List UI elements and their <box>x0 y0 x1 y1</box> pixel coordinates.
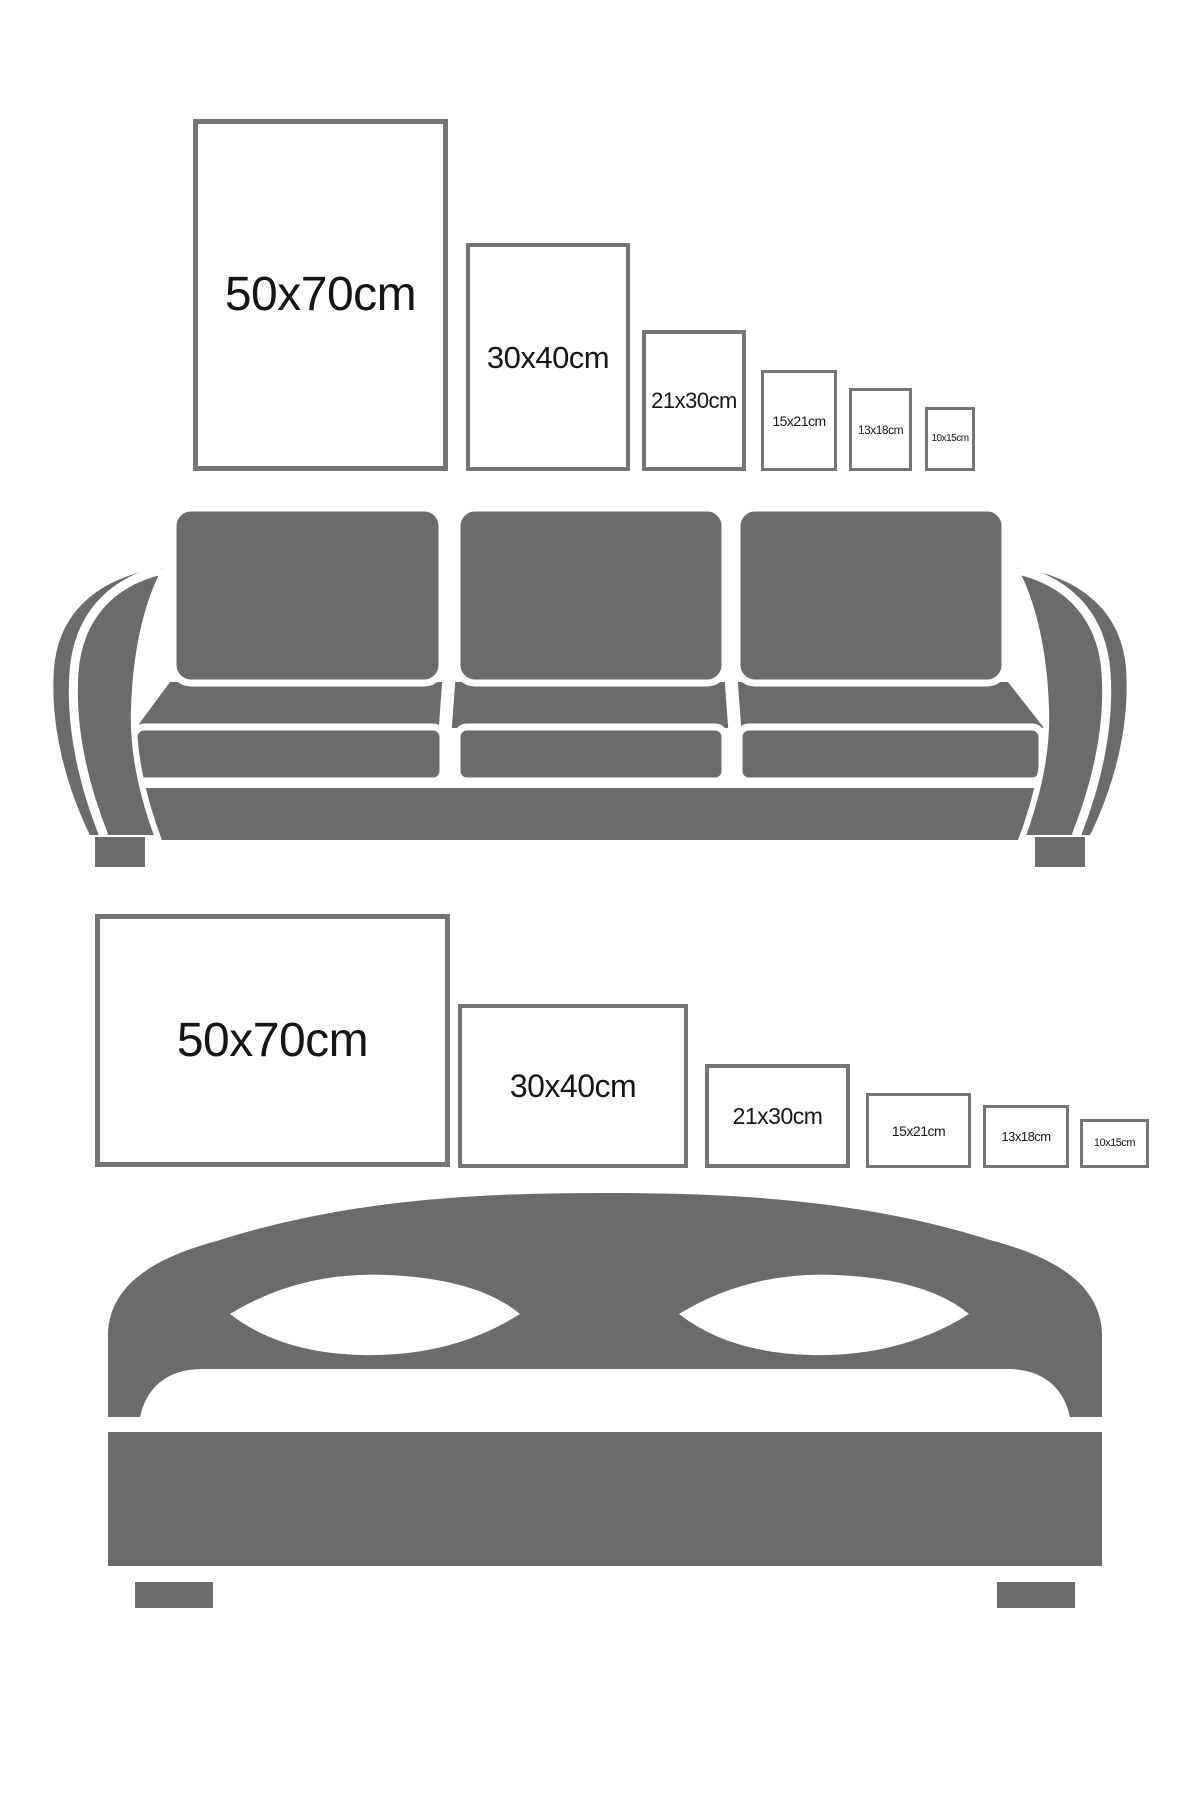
sofa-icon <box>40 500 1140 875</box>
frame-size-label: 13x18cm <box>1001 1130 1050 1143</box>
frame-size-label: 10x15cm <box>1094 1138 1135 1149</box>
frame-size-label: 15x21cm <box>892 1124 945 1138</box>
frame-landscape-21x30: 21x30cm <box>705 1064 850 1168</box>
frame-size-label: 10x15cm <box>931 434 968 444</box>
frame-portrait-30x40: 30x40cm <box>466 243 630 471</box>
frame-portrait-13x18: 13x18cm <box>849 388 912 471</box>
frame-portrait-10x15: 10x15cm <box>925 407 975 471</box>
frame-size-label: 50x70cm <box>177 1017 368 1065</box>
frame-landscape-13x18: 13x18cm <box>983 1105 1069 1168</box>
frame-size-label: 15x21cm <box>772 414 825 428</box>
size-guide-infographic: 50x70cm 30x40cm 21x30cm 15x21cm 13x18cm … <box>0 0 1200 1800</box>
frame-size-label: 21x30cm <box>733 1105 823 1128</box>
frame-size-label: 30x40cm <box>487 342 609 373</box>
bed-icon <box>100 1185 1110 1610</box>
frame-landscape-15x21: 15x21cm <box>866 1093 971 1168</box>
frame-landscape-10x15: 10x15cm <box>1080 1119 1149 1168</box>
frame-size-label: 21x30cm <box>651 390 737 412</box>
frame-landscape-30x40: 30x40cm <box>458 1004 688 1168</box>
frame-portrait-50x70: 50x70cm <box>193 119 448 471</box>
frame-portrait-21x30: 21x30cm <box>642 330 746 471</box>
frame-landscape-50x70: 50x70cm <box>95 914 450 1167</box>
frame-size-label: 50x70cm <box>225 271 416 319</box>
frame-size-label: 13x18cm <box>858 424 903 436</box>
frame-size-label: 30x40cm <box>510 1070 636 1102</box>
frame-portrait-15x21: 15x21cm <box>761 370 837 471</box>
